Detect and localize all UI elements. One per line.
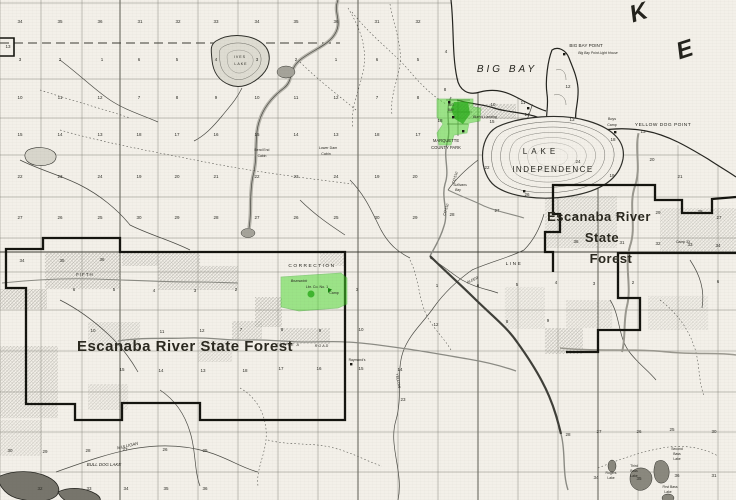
- map-label-rogers: Rogers: [606, 471, 617, 475]
- map-label-bass: Bass: [630, 469, 638, 473]
- map-label-camp: Camp: [607, 123, 617, 127]
- section-number: 26: [636, 429, 642, 434]
- section-number: 18: [242, 368, 248, 373]
- map-label-yellow-dog-point: YELLOW DOG POINT: [635, 122, 691, 128]
- section-number: 34: [593, 475, 599, 480]
- section-number: 15: [119, 367, 125, 372]
- map-label-road: ROAD: [315, 344, 329, 348]
- building-mark: [452, 116, 454, 118]
- building-mark: [527, 107, 529, 109]
- section-number: 11: [160, 329, 165, 334]
- section-number: 32: [655, 241, 661, 246]
- section-number: 14: [293, 132, 299, 137]
- section-number: 14: [524, 112, 530, 117]
- section-number: 28: [85, 448, 91, 453]
- section-number: 29: [655, 210, 661, 215]
- second-bass-lake: [654, 460, 669, 483]
- section-number: 24: [97, 174, 103, 179]
- section-number: 32: [37, 486, 43, 491]
- map-label-burn-s-landing: Burn's Landing: [473, 115, 497, 119]
- map-label-sullivans: Sullivans: [453, 183, 467, 187]
- section-number: 10: [358, 327, 364, 332]
- map-label-second: Second: [671, 447, 683, 451]
- section-number: 26: [524, 192, 530, 197]
- section-number: 11: [521, 100, 526, 105]
- section-number: 36: [674, 473, 680, 478]
- section-number: 34: [254, 19, 260, 24]
- section-number: 14: [158, 368, 164, 373]
- section-number: 35: [59, 258, 65, 263]
- section-number: 29: [174, 215, 180, 220]
- map-label-bay: BAY: [448, 108, 455, 112]
- state-land-hatch: [0, 289, 47, 309]
- section-number: 17: [174, 132, 180, 137]
- section-number: 18: [136, 132, 142, 137]
- state-land-hatch: [255, 297, 282, 327]
- map-label-lake: LAKE: [234, 62, 247, 66]
- map-label-camp-33: Camp 33: [676, 240, 690, 244]
- map-label-camp: Camp: [329, 291, 339, 295]
- section-number: 17: [278, 366, 284, 371]
- map-label-third: Third: [630, 464, 638, 468]
- section-number: 19: [136, 174, 142, 179]
- section-number: 22: [484, 165, 490, 170]
- section-number: 12: [199, 328, 205, 333]
- map-label-cabin: Cabin: [321, 152, 330, 156]
- section-number: 30: [136, 215, 142, 220]
- map-label-lake: Lake: [664, 490, 671, 494]
- section-number: 25: [202, 448, 208, 453]
- section-number: 15: [17, 132, 23, 137]
- section-number: 20: [412, 174, 418, 179]
- section-number: 17: [415, 132, 421, 137]
- highlight-parcel-brunswick-core: [308, 291, 315, 298]
- section-number: 13: [569, 117, 575, 122]
- section-number: 30: [7, 448, 13, 453]
- small-west-lake: [25, 148, 56, 166]
- section-number: 24: [575, 159, 581, 164]
- map-label-bull-dog-lake: BULL DOG LAKE: [87, 462, 122, 467]
- section-number: 23: [57, 174, 63, 179]
- building-mark: [614, 131, 616, 133]
- map-label-line: LINE: [506, 261, 523, 267]
- section-number: 34: [19, 258, 25, 263]
- map-canvas: 3435363132333435363132321654321651011127…: [0, 0, 736, 500]
- map-label-lake: Lake: [630, 474, 637, 478]
- map-label-lake: LAKE: [523, 147, 559, 156]
- building-mark: [350, 363, 352, 365]
- state-land-hatch: [648, 296, 708, 330]
- section-number: 22: [17, 174, 23, 179]
- small-pond: [241, 229, 255, 238]
- section-number: 10: [17, 95, 23, 100]
- section-number: 21: [677, 174, 683, 179]
- section-number: 18: [374, 132, 380, 137]
- state-land-hatch: [660, 208, 736, 254]
- building-mark: [563, 53, 565, 55]
- section-number: 27: [596, 429, 602, 434]
- map-label-boys: Boys: [608, 117, 616, 121]
- map-label-lake: Lake: [607, 476, 614, 480]
- section-number: 31: [711, 473, 717, 478]
- section-number: 11: [58, 95, 63, 100]
- section-number: 32: [415, 19, 421, 24]
- section-number: 31: [374, 19, 380, 24]
- section-number: 15: [254, 132, 260, 137]
- section-number: 34: [715, 243, 721, 248]
- map-label-independence: INDEPENDENCE: [512, 165, 594, 174]
- section-number: 13: [5, 44, 11, 49]
- map-label-bay: Bay: [455, 188, 461, 192]
- section-number: 20: [649, 157, 655, 162]
- state-land-hatch: [566, 300, 612, 328]
- section-number: 14: [57, 132, 63, 137]
- section-number: 11: [294, 95, 299, 100]
- section-number: 16: [213, 132, 219, 137]
- section-number: 30: [711, 429, 717, 434]
- map-label-marquette: MARQUETTE: [433, 138, 459, 143]
- section-number: 19: [374, 174, 380, 179]
- map-label-ives: IVES: [234, 55, 246, 59]
- section-number: 12: [333, 95, 339, 100]
- map-label-big-bay: BIG BAY: [477, 64, 537, 75]
- map-label-lbr-co-no-1: Lbr. Co. No. 1: [306, 285, 328, 289]
- state-land-hatch: [45, 253, 121, 289]
- section-number: 14: [397, 367, 403, 372]
- section-number: 26: [162, 447, 168, 452]
- section-number: 33: [86, 486, 92, 491]
- section-number: 34: [123, 486, 129, 491]
- section-number: 23: [293, 174, 299, 179]
- section-number: 10: [90, 328, 96, 333]
- map-label-escanaba-river: Escanaba River: [547, 209, 651, 224]
- section-number: 13: [97, 132, 103, 137]
- section-number: 22: [254, 174, 260, 179]
- map-label-fifth: FIFTH: [76, 272, 93, 277]
- section-number: 20: [174, 174, 180, 179]
- map-label-triple-a: TRIPLE A: [276, 343, 300, 347]
- section-number: 15: [489, 119, 495, 124]
- map-label-big-bay-point-light-house: Big Bay Point Light House: [578, 51, 618, 55]
- section-number: 28: [213, 215, 219, 220]
- section-number: 27: [254, 215, 260, 220]
- section-number: 27: [494, 208, 500, 213]
- section-number: 12: [97, 95, 103, 100]
- section-number: 29: [412, 215, 418, 220]
- map-label-lake: Lake: [673, 457, 680, 461]
- state-land-hatch: [122, 253, 200, 266]
- state-land-hatch: [545, 328, 583, 354]
- section-number: 23: [400, 397, 406, 402]
- section-number: 13: [200, 368, 206, 373]
- building-mark: [462, 130, 464, 132]
- section-number: 27: [17, 215, 23, 220]
- section-number: 16: [316, 366, 322, 371]
- map-label-brunswick: Brunswick: [291, 279, 308, 283]
- map-label-cabin: Cabin: [258, 154, 267, 158]
- map-label-escanaba-river-state-forest: Escanaba River State Forest: [77, 338, 293, 355]
- map-label-big: BIG: [448, 103, 454, 107]
- section-number: 28: [697, 209, 703, 214]
- section-number: 35: [57, 19, 63, 24]
- section-number: 36: [97, 19, 103, 24]
- map-label-lower-dam: Lower Dam: [319, 146, 337, 150]
- map-label-big-bay-point: BIG BAY POINT: [569, 43, 602, 48]
- section-number: 10: [254, 95, 260, 100]
- section-number: 31: [137, 19, 143, 24]
- section-number: 12: [565, 84, 571, 89]
- first-bass-lake: [662, 494, 674, 500]
- section-number: 12: [433, 322, 439, 327]
- state-land-hatch: [505, 287, 545, 329]
- section-number: 31: [619, 240, 625, 245]
- scanned-map: 3435363132333435363132321654321651011127…: [0, 0, 736, 500]
- section-number: 21: [213, 174, 219, 179]
- section-number: 28: [449, 212, 455, 217]
- section-number: 18: [437, 118, 443, 123]
- section-number: 18: [610, 137, 616, 142]
- section-number: 13: [640, 129, 646, 134]
- section-number: 28: [565, 432, 571, 437]
- section-number: 25: [333, 215, 339, 220]
- section-number: 35: [163, 486, 169, 491]
- state-land-hatch: [158, 266, 238, 290]
- section-number: 26: [293, 215, 299, 220]
- section-number: 25: [669, 427, 675, 432]
- map-label-state: State: [585, 230, 619, 245]
- state-land-hatch: [0, 420, 42, 456]
- section-number: 10: [490, 102, 496, 107]
- map-label-forest: Forest: [590, 251, 633, 266]
- section-number: 19: [609, 173, 615, 178]
- section-number: 36: [99, 257, 105, 262]
- section-number: 24: [333, 174, 339, 179]
- map-label-first-bass: First Bass: [662, 485, 677, 489]
- map-label-county-park: COUNTY PARK: [431, 145, 461, 150]
- map-label-bend-end: Bend End: [255, 148, 270, 152]
- section-number: 32: [175, 19, 181, 24]
- map-label-correction: CORRECTION: [288, 263, 335, 269]
- section-number: 33: [213, 19, 219, 24]
- section-number: 34: [17, 19, 23, 24]
- section-number: 26: [57, 215, 63, 220]
- section-number: 36: [333, 19, 339, 24]
- section-number: 30: [374, 215, 380, 220]
- section-number: 36: [202, 486, 208, 491]
- state-land-hatch: [0, 346, 58, 418]
- river-widening: [277, 66, 295, 78]
- map-label-bass: Bass: [673, 452, 681, 456]
- section-number: 13: [333, 132, 339, 137]
- section-number: 35: [293, 19, 299, 24]
- section-number: 36: [573, 239, 579, 244]
- section-number: 27: [716, 215, 722, 220]
- section-number: 25: [97, 215, 103, 220]
- section-number: 29: [42, 449, 48, 454]
- section-number: 15: [358, 366, 364, 371]
- map-label-raymond-s: Raymond's: [349, 358, 366, 362]
